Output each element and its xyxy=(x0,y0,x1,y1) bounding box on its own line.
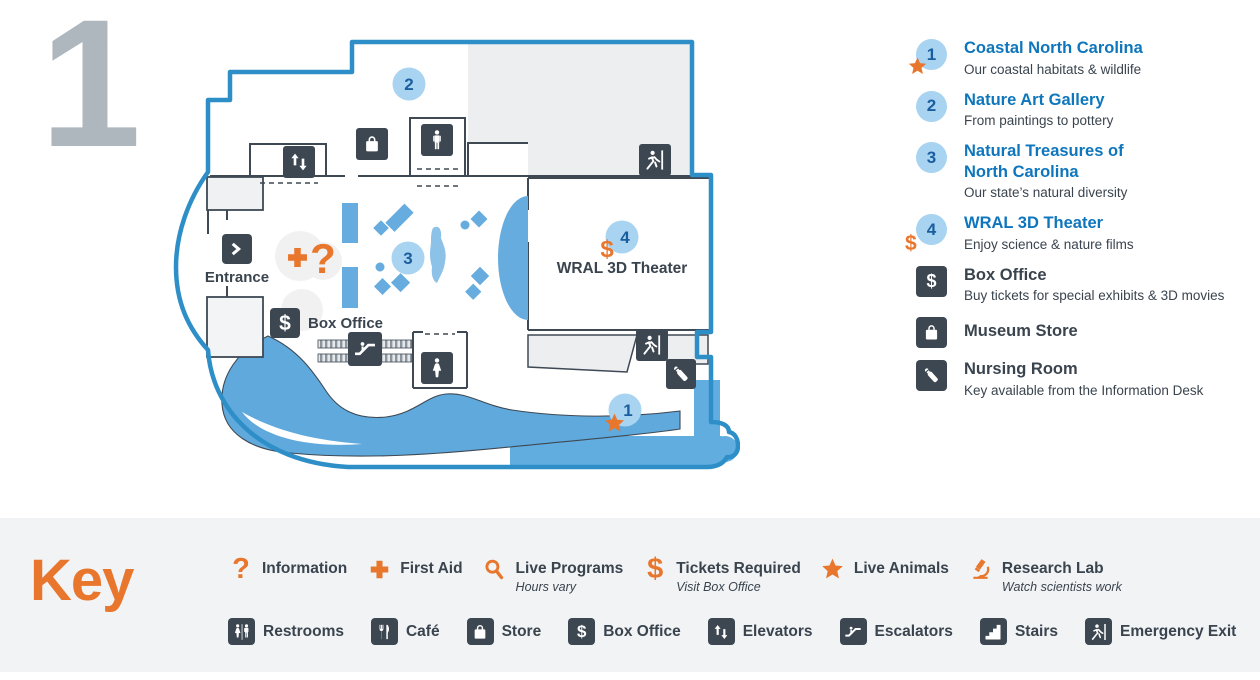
restrooms-icon xyxy=(228,618,255,645)
badge-number: 1 xyxy=(927,45,936,65)
box-office-label: Box Office xyxy=(308,315,383,332)
box-office-dollar-icon: $ xyxy=(916,266,947,297)
legend-item-art-gallery: 2 Nature Art Gallery From paintings to p… xyxy=(916,90,1256,131)
tickets-dollar-icon: $ xyxy=(600,236,614,263)
svg-text:2: 2 xyxy=(404,75,413,94)
badge-number: 3 xyxy=(927,148,936,168)
legend-subtitle: From paintings to pottery xyxy=(964,113,1113,130)
floor-plan-svg: ? Entrance $ Box Office xyxy=(164,20,740,490)
key-title: Key xyxy=(30,552,133,610)
exhibit-shapes xyxy=(342,196,528,320)
legend-item-nursing-room: Nursing Room Key available from the Info… xyxy=(916,359,1256,400)
legend-item-coastal: 1 Coastal North Carolina Our coastal hab… xyxy=(916,38,1256,79)
legend-title: Museum Store xyxy=(964,316,1078,347)
badge-number: 4 xyxy=(927,220,936,240)
key-item-box-office: $ Box Office xyxy=(568,618,681,645)
key-facilities-row: Restrooms Café Store $ Box Office Elevat… xyxy=(228,618,1260,645)
elevator-arrows-icon xyxy=(708,618,735,645)
key-item-subtext: Watch scientists work xyxy=(1002,580,1122,595)
nursing-bottle-icon xyxy=(916,360,947,391)
legend-title: Box Office xyxy=(964,265,1224,286)
elevator-icon xyxy=(283,146,315,178)
svg-text:1: 1 xyxy=(623,401,632,420)
title-line-2: North Carolina xyxy=(964,162,1127,183)
store-bag-icon xyxy=(467,618,494,645)
entrance-marker: Entrance xyxy=(205,234,269,286)
svg-text:3: 3 xyxy=(403,249,412,268)
key-item-live-animals: Live Animals xyxy=(820,556,949,582)
marker-badge-4: 4 $ xyxy=(916,214,947,245)
nursing-room-icon xyxy=(666,359,696,389)
store-bag-icon xyxy=(356,128,388,160)
dollar-icon: $ xyxy=(642,556,668,582)
theater-label: WRAL 3D Theater xyxy=(557,260,688,277)
legend-title: WRAL 3D Theater xyxy=(964,213,1134,234)
key-item-first-aid: First Aid xyxy=(366,556,462,582)
floor-plan-map: ? Entrance $ Box Office xyxy=(164,20,740,490)
legend-title: Coastal North Carolina xyxy=(964,38,1143,59)
live-animals-star-icon xyxy=(907,56,928,77)
key-item-live-programs: Live Programs Hours vary xyxy=(482,556,624,595)
title-line-1: Natural Treasures of xyxy=(964,141,1127,162)
emergency-exit-runner-icon xyxy=(636,329,668,361)
map-rooms xyxy=(207,177,263,357)
emergency-exit-runner-icon xyxy=(1085,618,1112,645)
marker-badge-1: 1 xyxy=(916,39,947,70)
tickets-dollar-icon: $ xyxy=(905,232,917,256)
legend-subtitle: Enjoy science & nature films xyxy=(964,237,1134,254)
key-bar: Key ? Information First Aid Live Program… xyxy=(0,518,1260,672)
escalator-icon xyxy=(840,618,867,645)
restroom-women-icon xyxy=(421,352,453,384)
legend-item-box-office: $ Box Office Buy tickets for special exh… xyxy=(916,265,1256,306)
key-item-subtext: Visit Box Office xyxy=(676,580,801,595)
floor-number: 1 xyxy=(40,0,137,174)
marker-badge-3: 3 xyxy=(916,142,947,173)
marker-4: 4 $ xyxy=(600,221,638,264)
star-icon xyxy=(820,556,846,582)
key-item-restrooms: Restrooms xyxy=(228,618,344,645)
map-gray-zones xyxy=(468,42,708,372)
legend-subtitle: Buy tickets for special exhibits & 3D mo… xyxy=(964,288,1224,305)
legend-title: Nursing Room xyxy=(964,359,1203,380)
marker-2: 2 xyxy=(393,68,426,101)
marker-badge-2: 2 xyxy=(916,91,947,122)
key-item-cafe: Café xyxy=(371,618,440,645)
info-first-aid: ? xyxy=(275,231,342,282)
key-item-research-lab: Research Lab Watch scientists work xyxy=(968,556,1122,595)
stairs-icon xyxy=(980,618,1007,645)
legend-subtitle: Our state’s natural diversity xyxy=(964,185,1127,202)
key-item-information: ? Information xyxy=(228,556,347,582)
question-icon: ? xyxy=(228,556,254,582)
legend-item-theater: 4 $ WRAL 3D Theater Enjoy science & natu… xyxy=(916,213,1256,254)
exhibit-legend: 1 Coastal North Carolina Our coastal hab… xyxy=(916,38,1256,411)
legend-item-museum-store: Museum Store xyxy=(916,316,1256,348)
microscope-icon xyxy=(968,556,994,582)
magnifier-icon xyxy=(482,556,508,582)
svg-text:4: 4 xyxy=(620,228,630,247)
key-item-elevators: Elevators xyxy=(708,618,813,645)
legend-title: Natural Treasures of North Carolina xyxy=(964,141,1127,182)
badge-number: 2 xyxy=(927,96,936,116)
entrance-label: Entrance xyxy=(205,269,269,286)
marker-3: 3 xyxy=(392,242,425,275)
key-amenities-row: ? Information First Aid Live Programs Ho… xyxy=(228,556,1141,595)
key-item-emergency-exit: Emergency Exit xyxy=(1085,618,1236,645)
box-office-dollar-icon: $ xyxy=(279,312,291,335)
key-item-subtext: Hours vary xyxy=(516,580,624,595)
information-question-icon: ? xyxy=(310,235,336,282)
museum-floor-map-page: 1 xyxy=(0,0,1260,680)
store-bag-icon xyxy=(916,317,947,348)
emergency-exit-runner-icon xyxy=(639,144,671,176)
escalator-icon xyxy=(348,332,382,366)
cafe-icon xyxy=(371,618,398,645)
legend-subtitle: Our coastal habitats & wildlife xyxy=(964,62,1143,79)
box-office-marker: $ Box Office xyxy=(270,289,383,338)
legend-subtitle: Key available from the Information Desk xyxy=(964,383,1203,400)
key-item-escalators: Escalators xyxy=(840,618,953,645)
key-item-tickets-required: $ Tickets Required Visit Box Office xyxy=(642,556,801,595)
legend-title: Nature Art Gallery xyxy=(964,90,1113,111)
restroom-men-icon xyxy=(421,124,453,156)
key-item-store: Store xyxy=(467,618,542,645)
box-office-dollar-icon: $ xyxy=(568,618,595,645)
legend-item-natural-treasures: 3 Natural Treasures of North Carolina Ou… xyxy=(916,141,1256,202)
key-item-stairs: Stairs xyxy=(980,618,1058,645)
first-aid-cross-icon xyxy=(366,556,392,582)
